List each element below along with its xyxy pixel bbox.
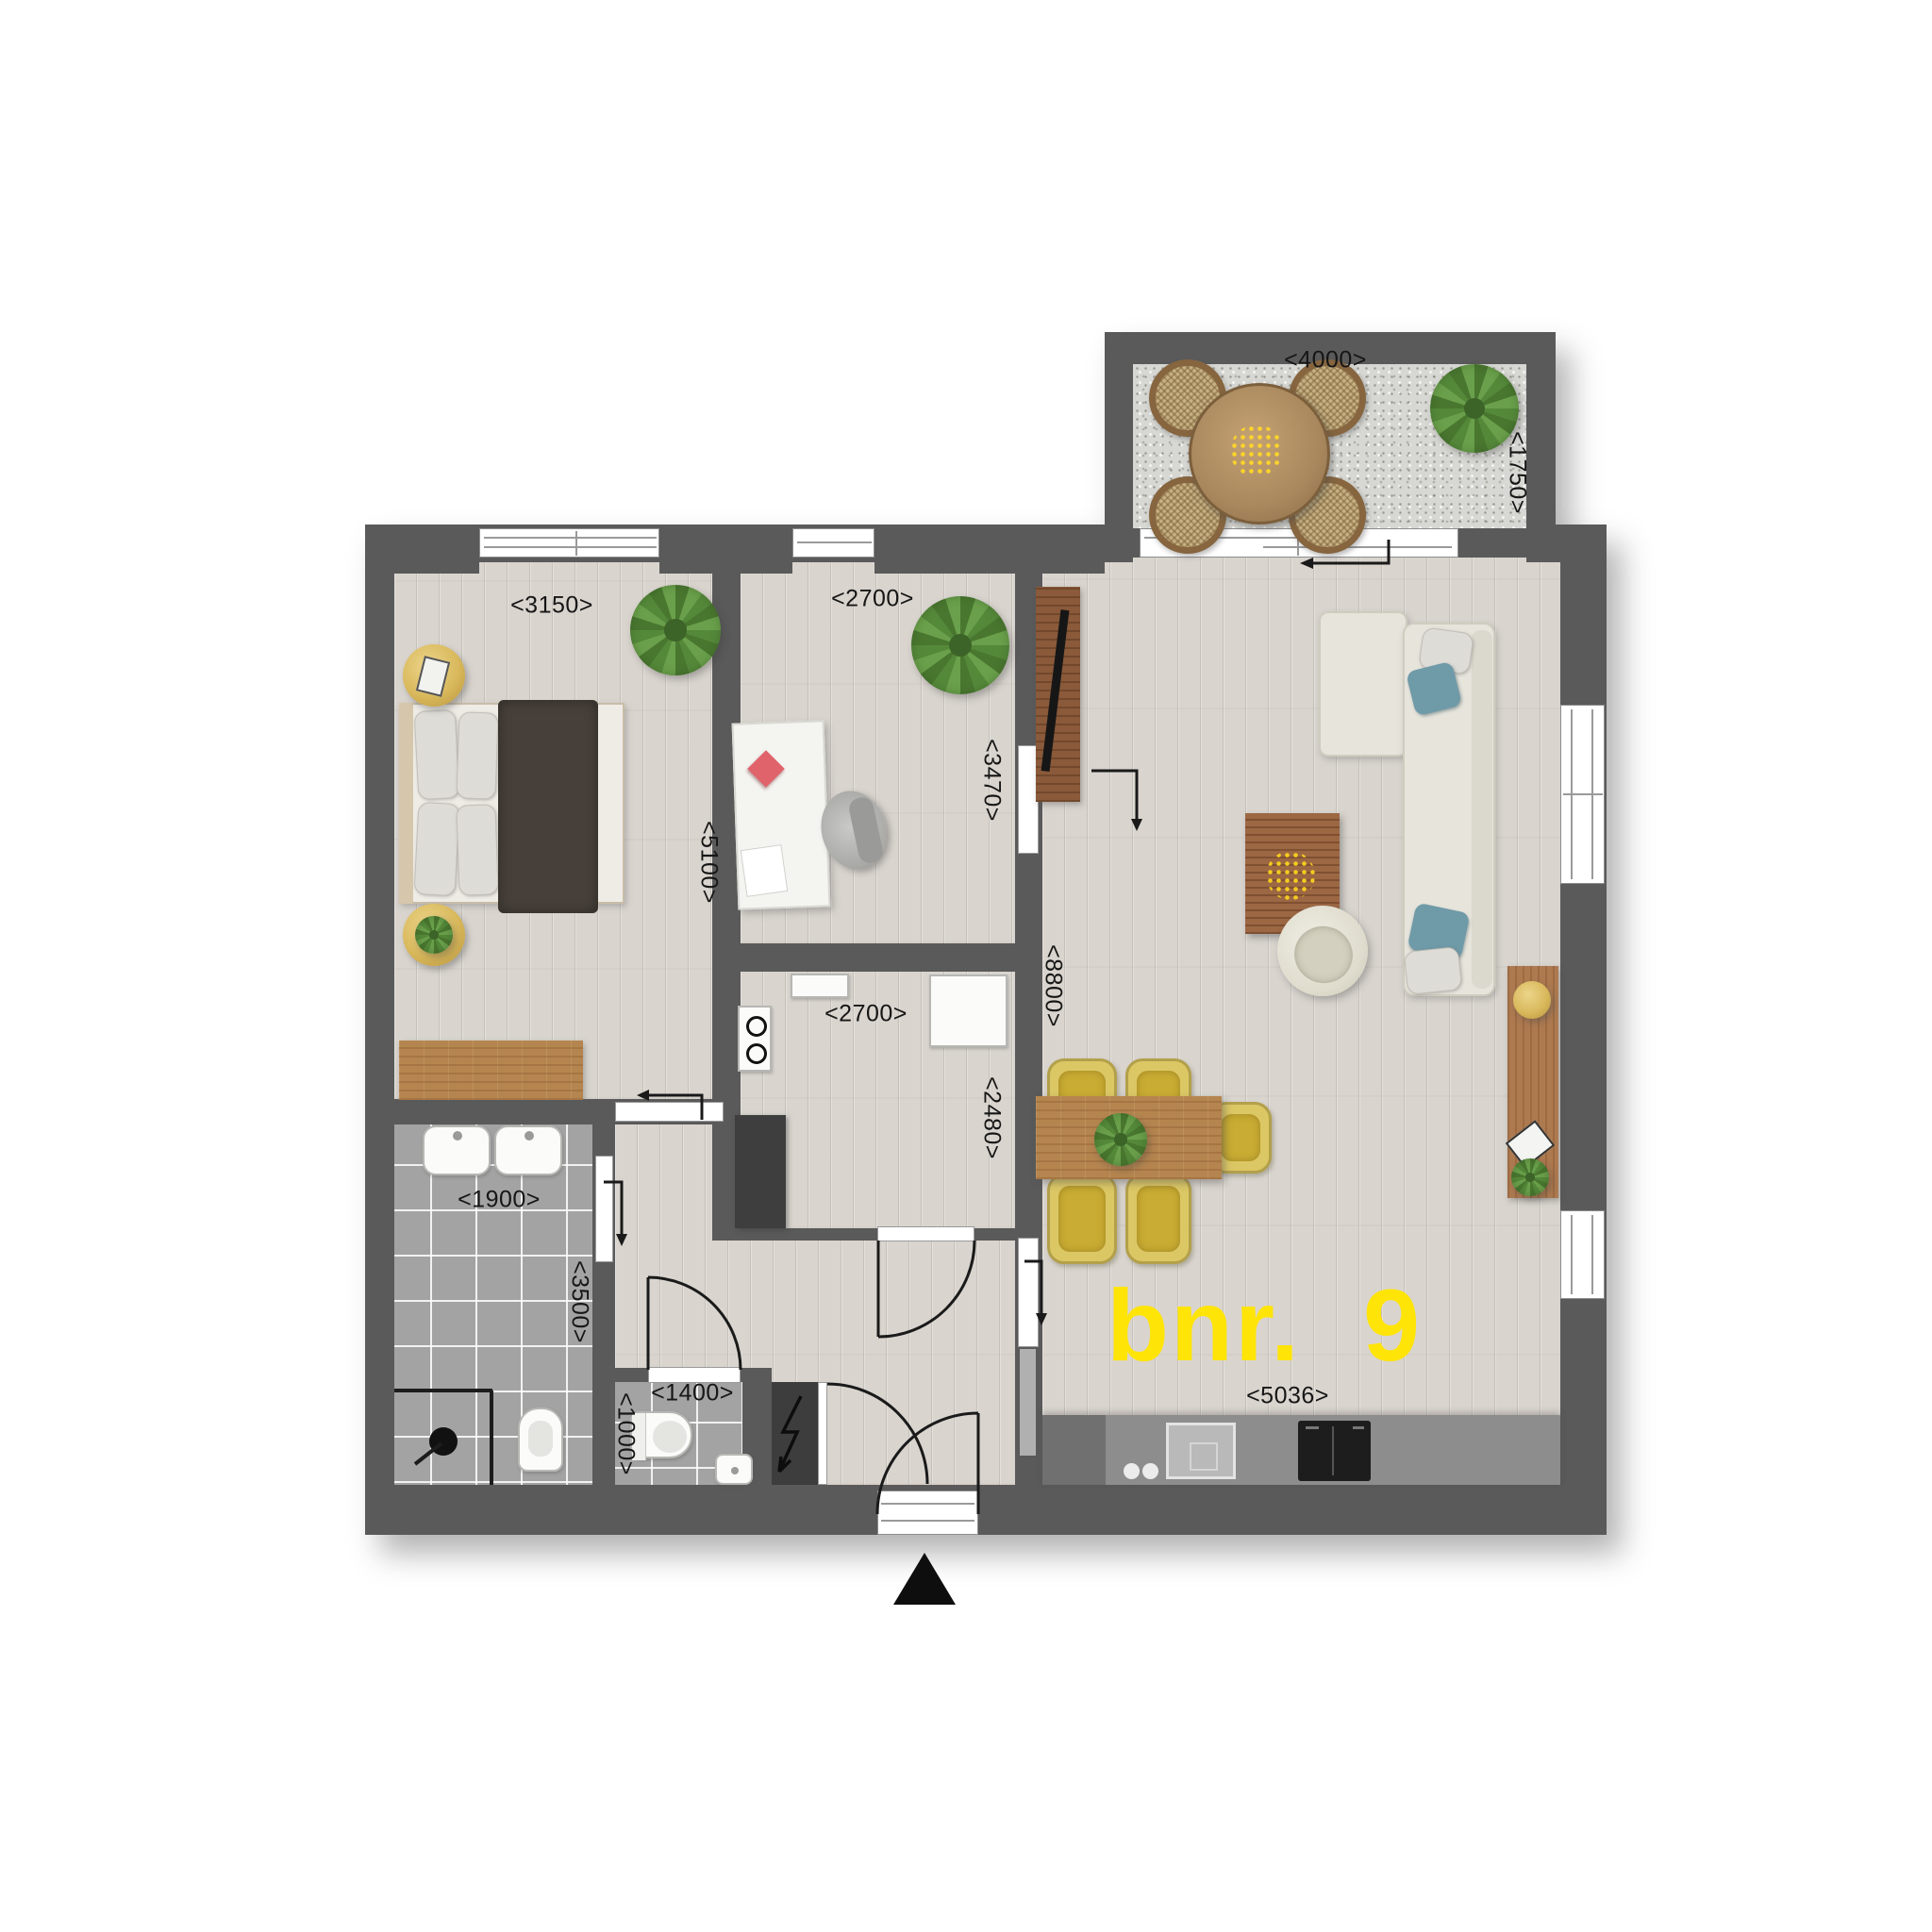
unit-number-label: bnr. 9 <box>1107 1266 1422 1384</box>
dim-wc-depth: <1000> <box>612 1392 640 1475</box>
bed-pillow <box>413 802 459 896</box>
wall-right <box>1560 525 1607 1535</box>
bedroom-window <box>479 528 659 558</box>
study-plant <box>911 596 1009 694</box>
bedroom-sliding-door <box>615 1102 724 1122</box>
wc-toilet <box>630 1411 692 1458</box>
floorplan-canvas: <4000> <1750> <3150> <5100> <2700> <3470… <box>0 0 1932 1932</box>
north-arrow <box>893 1553 956 1605</box>
counter-sink <box>1166 1423 1236 1479</box>
bed-pillow <box>456 711 498 799</box>
dim-study-width: <2700> <box>831 586 914 613</box>
terrace-table-flowers <box>1230 425 1283 477</box>
dining-table-plant <box>1094 1113 1147 1166</box>
counter-faucet <box>1142 1463 1158 1479</box>
dim-bedroom-depth: <5100> <box>695 821 723 904</box>
wall-study-kitchen <box>712 943 1038 972</box>
counter-faucet <box>1124 1463 1140 1479</box>
dim-study-opening: <3470> <box>978 739 1006 822</box>
shower-head <box>429 1427 458 1456</box>
hall-living-door-pocket <box>1020 1349 1036 1456</box>
dim-living-width: <5036> <box>1246 1383 1329 1410</box>
sofa-backrest <box>1472 630 1492 989</box>
entrance-door <box>877 1491 978 1535</box>
kitchen-tall-unit <box>735 1115 786 1228</box>
counter-cooktop <box>1298 1421 1371 1481</box>
wall-bottom <box>365 1485 1607 1535</box>
dim-bedroom-width: <3150> <box>510 592 593 620</box>
bedside-plant <box>415 916 453 954</box>
bed-pillow <box>414 709 460 800</box>
dining-chair <box>1125 1174 1191 1264</box>
dim-bathroom-depth: <3500> <box>566 1260 593 1343</box>
kitchen-cooktop <box>738 1006 772 1072</box>
wall-kitchen-bottom <box>712 1228 1038 1241</box>
coffee-table-flowers <box>1266 851 1315 900</box>
wall-terrace-left <box>1105 332 1133 562</box>
bathroom-sliding-door <box>595 1156 613 1262</box>
sideboard-plant <box>1511 1158 1549 1196</box>
sideboard-lamp <box>1513 981 1551 1019</box>
dim-kitchen-width: <2700> <box>824 1001 908 1028</box>
closet-door <box>818 1382 827 1485</box>
wall-left <box>365 525 394 1535</box>
dim-terrace-depth: <1750> <box>1504 431 1531 514</box>
bedroom-plant <box>630 585 721 675</box>
hall-living-sliding-door <box>1018 1238 1039 1347</box>
bed-pillow <box>456 804 498 895</box>
wall-top-jog-right <box>874 525 1105 574</box>
bathroom-sink <box>423 1125 491 1175</box>
dim-kitchen-depth: <2480> <box>978 1076 1006 1159</box>
bathroom-sink <box>494 1125 562 1175</box>
electrical-closet <box>772 1382 818 1485</box>
dim-wc-width: <1400> <box>651 1380 734 1407</box>
dim-living-depth: <8800> <box>1040 944 1067 1027</box>
kitchen-counter-end <box>1042 1415 1106 1485</box>
kitchen-fridge <box>929 974 1008 1047</box>
wc-sink <box>715 1454 753 1485</box>
sofa-chaise <box>1319 611 1407 757</box>
study-window <box>792 528 874 558</box>
bathroom-toilet <box>518 1407 563 1472</box>
bed-headboard <box>399 703 413 904</box>
living-window-right-double <box>1560 705 1605 884</box>
kitchen-wall-cabinet <box>791 974 849 998</box>
tv-cabinet <box>1036 587 1080 802</box>
bedroom-dresser <box>399 1041 583 1100</box>
dining-chair <box>1047 1174 1117 1264</box>
desk-papers <box>741 844 789 897</box>
kitchen-door-opening <box>877 1226 974 1241</box>
dim-terrace-width: <4000> <box>1284 347 1367 375</box>
bed-blanket <box>498 700 598 913</box>
living-window-right-single <box>1560 1210 1605 1299</box>
dim-bathroom-width: <1900> <box>458 1187 541 1214</box>
sofa-pillow-white <box>1404 946 1462 995</box>
